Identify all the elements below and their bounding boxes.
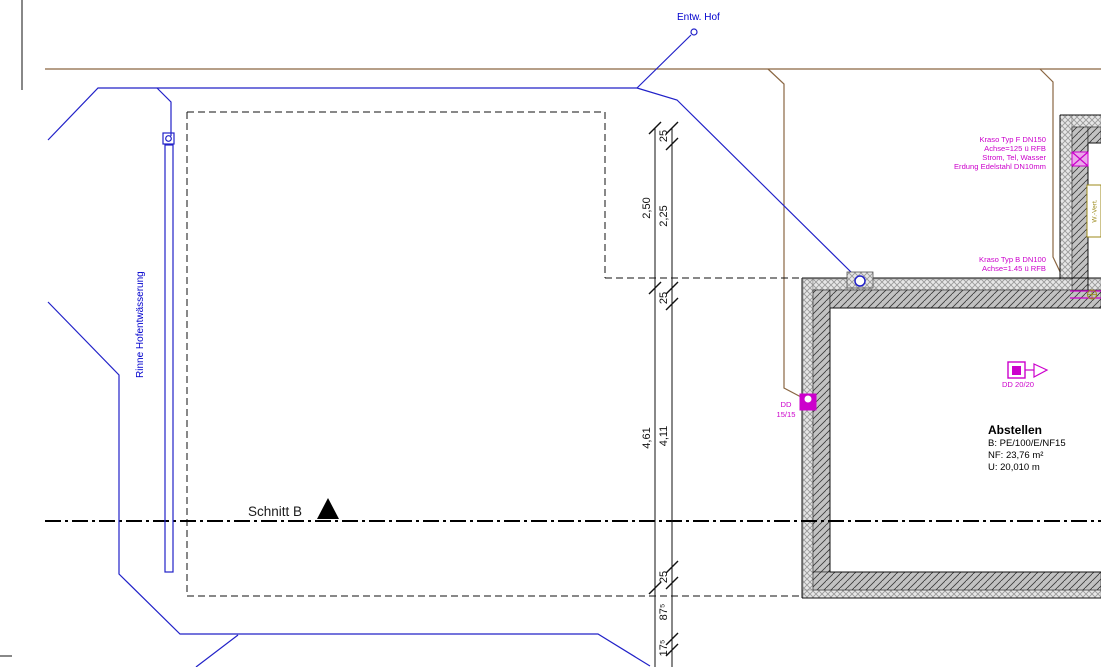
rinne-channel: Rinne Hofentwässerung xyxy=(135,133,174,572)
section-line: Schnitt B xyxy=(45,498,1101,521)
dim-right-0: 25 xyxy=(658,130,670,142)
excavation-dashed-outline xyxy=(187,112,802,596)
section-label: Schnitt B xyxy=(248,504,302,519)
kraso-f-line-3: Erdung Edelstahl DN10mm xyxy=(954,162,1046,171)
room-perimeter: U: 20,010 m xyxy=(988,462,1040,473)
floor-plan-canvas: Schnitt B Entw. Hof Rinne Hofentwässerun… xyxy=(0,0,1101,667)
entw-hof-node xyxy=(691,29,697,35)
kraso-f-line-1: Achse=125 ü RFB xyxy=(984,144,1046,153)
dim-right-6: 17⁵ xyxy=(658,640,670,657)
dimension-chains: 2,50 4,61 25 2,25 25 4,11 25 87⁵ 17⁵ xyxy=(641,122,678,667)
drain-outlet xyxy=(847,272,873,288)
dim-right-2: 25 xyxy=(658,292,670,304)
dd-15-line-0: DD xyxy=(781,400,792,409)
kraso-b-line-0: Kraso Typ B DN100 xyxy=(979,255,1046,264)
kraso-b-line-1: Achse=1.45 ü RFB xyxy=(982,264,1046,273)
dim-right-5: 87⁵ xyxy=(658,604,670,621)
building-walls xyxy=(802,115,1101,598)
dd-20-arrow xyxy=(1034,364,1047,377)
dd-15-line-1: 15/15 xyxy=(776,410,795,419)
kraso-f-line-0: Kraso Typ F DN150 xyxy=(979,135,1046,144)
dim-left-1: 4,61 xyxy=(641,427,653,448)
dim-left-0: 2,50 xyxy=(641,197,653,218)
drain-outlet-circle xyxy=(855,276,865,286)
dim-right-3: 4,11 xyxy=(658,426,670,447)
room-stamp: Abstellen B: PE/100/E/NF15 NF: 23,76 m² … xyxy=(988,423,1066,473)
dd-20-label: DD 20/20 xyxy=(1002,380,1034,389)
room-construction: B: PE/100/E/NF15 xyxy=(988,438,1066,449)
room-name: Abstellen xyxy=(988,423,1042,437)
kraso-f-line-2: Strom, Tel, Wasser xyxy=(982,153,1046,162)
dim-right-4: 25 xyxy=(658,571,670,583)
w-vert-label: W.-Vert. xyxy=(1092,199,1099,222)
dim-right-1: 2,25 xyxy=(658,205,670,226)
section-direction-marker xyxy=(317,498,339,519)
sheet-frame-marks xyxy=(0,0,22,656)
utility-lines-brown xyxy=(45,69,1101,397)
entw-hof-label: Entw. Hof xyxy=(677,12,720,23)
room-area: NF: 23,76 m² xyxy=(988,450,1043,461)
dd-20-annotation: DD 20/20 xyxy=(1002,362,1047,389)
courtyard-drainage-lines: Entw. Hof xyxy=(48,12,855,667)
rinne-label: Rinne Hofentwässerung xyxy=(135,271,146,378)
w-vert-box: W.-Vert. xyxy=(1087,185,1101,237)
entw-hof-leader xyxy=(637,35,691,88)
